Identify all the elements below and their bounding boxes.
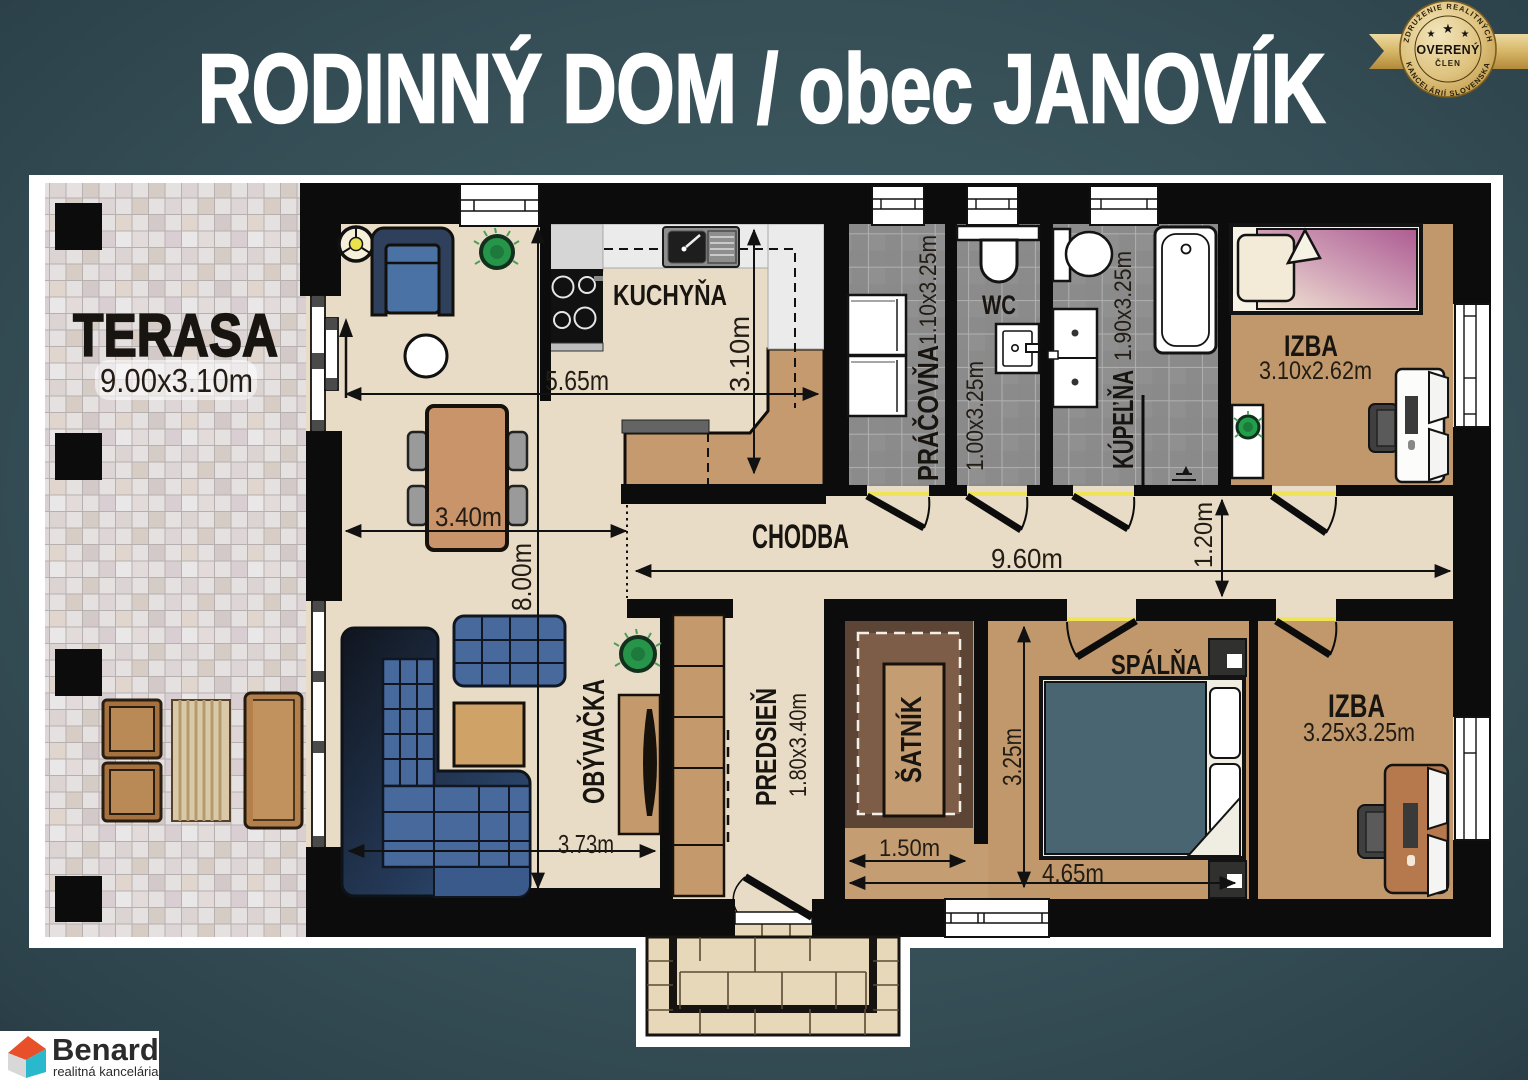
svg-text:3.10m: 3.10m [724,316,755,392]
svg-text:ČLEN: ČLEN [1435,59,1461,68]
svg-text:1.90x3.25m: 1.90x3.25m [1110,251,1137,361]
svg-text:3.25m: 3.25m [997,728,1027,786]
svg-text:★: ★ [1427,29,1436,40]
svg-text:3.10x2.62m: 3.10x2.62m [1259,357,1372,385]
svg-text:9.00x3.10m: 9.00x3.10m [100,362,253,399]
svg-text:PREDSIEŇ: PREDSIEŇ [749,688,783,806]
svg-text:1.50m: 1.50m [879,835,940,862]
svg-text:KUCHYŇA: KUCHYŇA [613,278,727,312]
svg-text:OBÝVAČKA: OBÝVAČKA [575,679,611,804]
svg-text:RODINNÝ DOM / obec JANOVÍK: RODINNÝ DOM / obec JANOVÍK [198,34,1325,143]
svg-text:KÚPEĽŇA: KÚPEĽŇA [1106,370,1140,469]
svg-text:SPÁLŇA: SPÁLŇA [1111,649,1202,680]
svg-text:1.20m: 1.20m [1190,502,1218,568]
svg-text:9.60m: 9.60m [991,543,1063,574]
svg-text:1.80x3.40m: 1.80x3.40m [785,693,812,797]
svg-text:PRÁČOVŇA: PRÁČOVŇA [911,345,945,481]
svg-text:CHODBA: CHODBA [752,518,849,556]
svg-text:Benard: Benard [52,1032,159,1067]
svg-text:8.00m: 8.00m [506,543,537,611]
svg-text:WC: WC [982,290,1016,320]
svg-text:5.65m: 5.65m [545,365,609,396]
svg-text:TERASA: TERASA [73,302,278,369]
svg-text:realitná kancelária: realitná kancelária [53,1064,159,1079]
svg-text:1.10x3.25m: 1.10x3.25m [915,235,942,345]
svg-text:1.00x3.25m: 1.00x3.25m [962,361,989,471]
svg-text:OVERENÝ: OVERENÝ [1416,42,1480,57]
svg-text:★: ★ [1461,29,1470,40]
svg-text:ŠATNÍK: ŠATNÍK [894,696,928,783]
svg-text:3.25x3.25m: 3.25x3.25m [1303,717,1415,747]
svg-text:★: ★ [1442,21,1454,36]
svg-text:3.40m: 3.40m [435,502,502,532]
svg-text:4.65m: 4.65m [1042,858,1104,888]
svg-text:3.73m: 3.73m [558,829,614,859]
